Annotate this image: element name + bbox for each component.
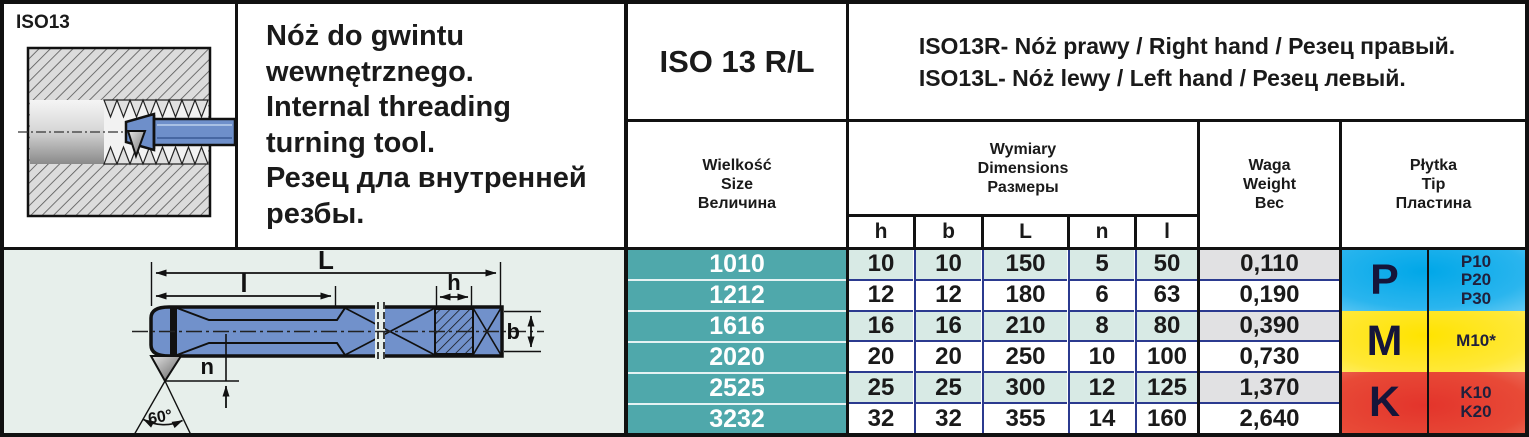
dim-col-header-L: L [984, 217, 1067, 247]
tip-column-header: Płytka Tip Пластина [1342, 122, 1525, 247]
grade-band-m: M M10* [1342, 311, 1525, 372]
dim-col-header-b: b [916, 217, 981, 247]
b-value: 10 [916, 250, 981, 279]
divider [981, 214, 984, 250]
dim-label-l: l [240, 268, 247, 298]
grade-letter-m: M [1342, 317, 1427, 366]
l-value: 80 [1137, 310, 1197, 341]
grade-item: K20 [1460, 403, 1491, 422]
product-title: ISO 13 R/L [628, 4, 846, 119]
l-value: 63 [1137, 279, 1197, 310]
divider [1134, 214, 1137, 250]
size-value: 1616 [628, 310, 846, 341]
cutting-tip [151, 356, 181, 381]
weight-value: 0,730 [1200, 340, 1339, 371]
dim-label-b: b [507, 319, 520, 344]
variants-cell: ISO13R- Nóż prawy / Right hand / Резец п… [849, 4, 1525, 119]
dim-label-L: L [318, 250, 334, 275]
n-column: 5 6 8 10 12 14 [1070, 250, 1134, 433]
size-value: 2020 [628, 341, 846, 372]
divider [913, 214, 916, 250]
grade-item: P20 [1461, 271, 1491, 290]
size-column-header: Wielkość Size Величина [628, 122, 846, 247]
n-value: 5 [1070, 250, 1134, 279]
grade-item: K10 [1460, 384, 1491, 403]
carbide-grades-block: P P10 P20 P30 M M10* K K10 K20 [1342, 250, 1525, 433]
divider [1339, 119, 1342, 433]
b-value: 16 [916, 310, 981, 341]
h-column: 10 12 16 20 25 32 [849, 250, 913, 433]
divider [982, 250, 984, 433]
description-line: Nóż do gwintu [266, 19, 624, 55]
weight-column: 0,110 0,190 0,390 0,730 1,370 2,640 [1200, 250, 1339, 433]
l-value: 50 [1137, 250, 1197, 279]
divider [624, 4, 628, 433]
dim-col-header-n: n [1070, 217, 1134, 247]
size-value: 2525 [628, 372, 846, 403]
divider [846, 214, 1200, 217]
L-value: 210 [984, 310, 1067, 341]
L-value: 250 [984, 340, 1067, 371]
l-value: 100 [1137, 340, 1197, 371]
divider [1135, 250, 1137, 433]
dim-col-header-h: h [849, 217, 913, 247]
weight-value: 0,190 [1200, 279, 1339, 310]
grade-item: P10 [1461, 253, 1491, 272]
dim-col-header-l: l [1137, 217, 1197, 247]
divider [1067, 214, 1070, 250]
grade-band-p: P P10 P20 P30 [1342, 250, 1525, 311]
grade-item: P30 [1461, 290, 1491, 309]
divider [1068, 250, 1070, 433]
h-value: 25 [849, 371, 913, 402]
description-line: turning tool. [266, 126, 624, 162]
weight-value: 0,110 [1200, 250, 1339, 279]
b-value: 20 [916, 340, 981, 371]
dim-label-h: h [447, 270, 460, 295]
variant-left-hand: ISO13L- Nóż lewy / Left hand / Резец лев… [919, 62, 1455, 94]
n-value: 6 [1070, 279, 1134, 310]
product-image-cell: ISO13 [4, 4, 235, 247]
description-line: Internal threading [266, 90, 624, 126]
l-value: 125 [1137, 371, 1197, 402]
dim-label-n: n [201, 354, 214, 379]
dimensions-column-header: Wymiary Dimensions Размеры [849, 122, 1197, 214]
dimension-drawing-area: L l h b n 60° [4, 250, 624, 433]
L-value: 180 [984, 279, 1067, 310]
h-value: 16 [849, 310, 913, 341]
L-value: 355 [984, 402, 1067, 433]
tool-dimension-drawing: L l h b n 60° [4, 250, 624, 433]
b-value: 32 [916, 402, 981, 433]
b-value: 12 [916, 279, 981, 310]
description-line: резбы. [266, 197, 624, 233]
internal-threading-illustration [4, 4, 235, 247]
b-column: 10 12 16 20 25 32 [916, 250, 981, 433]
n-value: 12 [1070, 371, 1134, 402]
description-line: wewnętrznego. [266, 55, 624, 91]
size-value: 1010 [628, 250, 846, 279]
h-value: 20 [849, 340, 913, 371]
product-code-label: ISO13 [16, 12, 70, 34]
l-value: 160 [1137, 402, 1197, 433]
catalog-sheet: ISO13 [0, 0, 1529, 437]
L-column: 150 180 210 250 300 355 [984, 250, 1067, 433]
h-value: 12 [849, 279, 913, 310]
size-value: 3232 [628, 403, 846, 434]
description-line: Резец дла внутренней [266, 161, 624, 197]
weight-column-header: Waga Weight Вес [1200, 122, 1339, 247]
grade-band-k: K K10 K20 [1342, 372, 1525, 433]
divider [4, 247, 1525, 250]
pmk-divider [1427, 250, 1429, 433]
product-description: Nóż do gwintu wewnętrznego. Internal thr… [238, 4, 624, 247]
n-value: 8 [1070, 310, 1134, 341]
l-column: 50 63 80 100 125 160 [1137, 250, 1197, 433]
weight-value: 2,640 [1200, 402, 1339, 433]
size-column: 1010 1212 1616 2020 2525 3232 [628, 250, 846, 433]
divider [914, 250, 916, 433]
grade-letter-p: P [1342, 256, 1427, 305]
h-value: 10 [849, 250, 913, 279]
b-value: 25 [916, 371, 981, 402]
n-value: 10 [1070, 340, 1134, 371]
h-value: 32 [849, 402, 913, 433]
grade-letter-k: K [1342, 378, 1427, 427]
divider [235, 4, 238, 247]
divider [1197, 119, 1200, 433]
divider [846, 4, 849, 433]
grade-item: M10* [1456, 332, 1496, 351]
weight-value: 0,390 [1200, 310, 1339, 341]
size-value: 1212 [628, 279, 846, 310]
weight-value: 1,370 [1200, 371, 1339, 402]
n-value: 14 [1070, 402, 1134, 433]
L-value: 300 [984, 371, 1067, 402]
divider [624, 119, 1525, 122]
variant-right-hand: ISO13R- Nóż prawy / Right hand / Резец п… [919, 30, 1455, 62]
L-value: 150 [984, 250, 1067, 279]
